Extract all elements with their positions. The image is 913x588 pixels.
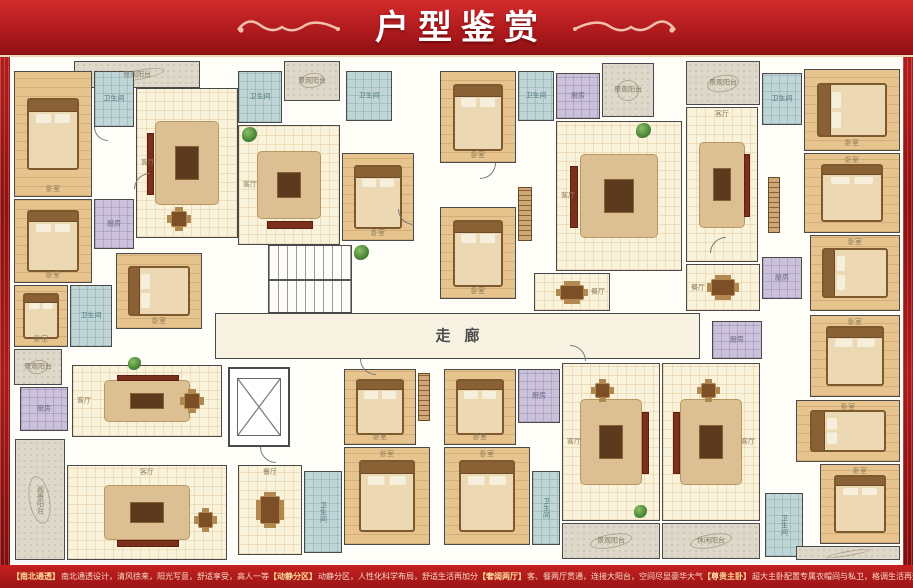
room-label: 卧室	[46, 186, 60, 193]
bed-icon	[821, 164, 883, 223]
room-label: 客厅	[243, 182, 257, 189]
living-top-center: 客厅	[556, 121, 682, 271]
balcony-top-center: 景观阳台	[602, 63, 654, 117]
bed-icon	[27, 98, 78, 170]
room-label: 卧室	[845, 140, 859, 147]
selling-point-text: 超大主卧配置专属衣帽间与私卫，格调生活再升值	[752, 572, 913, 581]
bedroom-top-left-1: 卧室	[14, 71, 92, 197]
room-label: 休闲阳台	[697, 538, 725, 545]
bedroom-bottom-center-r1: 卧室	[444, 369, 516, 445]
room-label: 卧室	[371, 230, 385, 237]
selling-point-tag: 【南北通透】	[12, 572, 60, 581]
bed-icon	[23, 293, 59, 339]
room-label: 卫生间	[543, 498, 550, 519]
room-label: 卫生间	[81, 313, 102, 320]
table-icon	[198, 512, 213, 528]
table-icon	[171, 211, 187, 227]
plant-icon	[128, 357, 141, 370]
room-label: 餐厅	[691, 284, 705, 291]
bedroom-top-left-2: 卧室	[14, 199, 92, 283]
corridor: 走廊	[215, 313, 700, 359]
bedroom-left-small: 卧室	[14, 285, 68, 347]
kitchen-mid-right: 厨房	[712, 321, 762, 359]
door-arc-icon	[94, 127, 108, 141]
room-label: 厨房	[730, 337, 744, 344]
sofa-icon	[257, 151, 321, 219]
room-label: 餐厅	[591, 289, 605, 296]
balcony-top-right: 景观阳台	[686, 61, 760, 105]
room-label: 卧室	[373, 434, 387, 441]
curtain-border-right	[903, 57, 913, 565]
bedroom-top-right-3: 卧室	[810, 235, 900, 311]
plant-icon	[354, 245, 369, 260]
room-label: 景观阳台	[298, 78, 326, 85]
door-arc-icon	[480, 163, 496, 179]
bedroom-top-mid: 卧室	[342, 153, 414, 241]
room-label: 卫生间	[781, 515, 788, 536]
room-label: 厨房	[107, 221, 121, 228]
kitchen-top-right: 厨房	[762, 257, 802, 299]
bedroom-top-center-2: 卧室	[440, 207, 516, 299]
room-label: 景观阳台	[614, 87, 642, 94]
selling-point-tag: 【奢阔两厅】	[478, 572, 526, 581]
room-label: 厨房	[571, 93, 585, 100]
sofa-icon	[155, 121, 219, 206]
selling-point: 【南北通透】南北通透设计，清风徐来，阳光写意，舒适享受，高人一等	[12, 573, 269, 581]
table-icon	[184, 393, 199, 410]
selling-point-tag: 【尊贵主卧】	[703, 572, 751, 581]
bed-icon	[453, 220, 503, 287]
room-label: 厨房	[37, 406, 51, 413]
bed-icon	[810, 410, 885, 451]
sofa-icon	[699, 142, 744, 228]
poster-page: 户型鉴赏 景观阳台卧室卫生间客厅卧室厨房卧室卫生间卧室卫生间景观阳台客厅卧室卫生…	[0, 0, 913, 588]
plant-center	[354, 245, 369, 260]
flourish-left-icon	[234, 14, 346, 42]
room-label: 卧室	[380, 451, 394, 458]
room-label: 景观阳台	[709, 80, 737, 87]
room-label: 客厅	[715, 111, 729, 118]
room-label: 观景阳台	[37, 486, 44, 514]
bath-bottom-center-left: 卫生间	[304, 471, 342, 553]
curtain-border-left	[0, 57, 10, 565]
room-label: 厨房	[532, 393, 546, 400]
plant-bottom-center	[634, 505, 647, 518]
bath-left-mid: 卫生间	[70, 285, 112, 347]
table-icon	[560, 285, 584, 300]
room-label: 景观阳台	[24, 364, 52, 371]
dining-top-center: 餐厅	[534, 273, 610, 311]
selling-point-text: 动静分区，人性化科学布局，舒适生活再加分	[318, 572, 478, 581]
room-label: 景观阳台	[597, 538, 625, 545]
room-label: 卧室	[471, 152, 485, 159]
room-label: 卧室	[845, 157, 859, 164]
bed-icon	[128, 266, 191, 316]
bedroom-bottom-center-r2: 卧室	[444, 447, 530, 545]
room-label: 客厅	[561, 193, 575, 200]
room-label: 景观阳台	[123, 71, 151, 78]
selling-point: 【动静分区】动静分区，人性化科学布局，舒适生活再加分	[269, 573, 478, 581]
bed-icon	[459, 460, 515, 531]
room-label: 客厅	[567, 439, 581, 446]
room-label: 卫生间	[104, 96, 125, 103]
bedroom-bottom-center-l2: 卧室	[344, 447, 430, 545]
selling-points-bar: 【南北通透】南北通透设计，清风徐来，阳光写意，舒适享受，高人一等【动静分区】动静…	[0, 565, 913, 588]
selling-point-text: 客、餐两厅贯通，连接大阳台，空间尽显豪华大气	[527, 572, 703, 581]
plant-icon	[634, 505, 647, 518]
balcony-top-mid: 景观阳台	[284, 61, 340, 101]
balcony-bottom-left-2: 观景阳台	[15, 439, 65, 560]
room-label: 卧室	[848, 319, 862, 326]
room-label: 卧室	[46, 272, 60, 279]
kitchen-top-left: 厨房	[94, 199, 134, 249]
room-label: 卫生间	[359, 93, 380, 100]
room-label: 卫生间	[526, 93, 547, 100]
bedroom-top-center-1: 卧室	[440, 71, 516, 163]
bed-icon	[354, 165, 401, 229]
balcony-top-left: 景观阳台	[74, 61, 200, 88]
dining-bottom-center: 餐厅	[238, 465, 302, 555]
table-icon	[595, 383, 610, 398]
dining-top-right: 餐厅	[686, 264, 760, 311]
room-label: 卧室	[848, 239, 862, 246]
table-icon	[711, 279, 735, 296]
bath-top-left: 卫生间	[94, 71, 134, 127]
wardrobe-top-right	[768, 177, 780, 233]
room-label: 卧室	[34, 336, 48, 343]
floor-plan: 景观阳台卧室卫生间客厅卧室厨房卧室卫生间卧室卫生间景观阳台客厅卧室卫生间卧室卫生…	[10, 57, 903, 565]
room-label: 走廊	[421, 329, 493, 344]
balcony-bottom-left-1: 景观阳台	[14, 349, 62, 385]
selling-point-text: 南北通透设计，清风徐来，阳光写意，舒适享受，高人一等	[61, 572, 269, 581]
kitchen-bottom-left: 厨房	[20, 387, 68, 431]
bedroom-bottom-right-2: 卧室	[820, 464, 900, 544]
bedroom-top-right-1: 卧室	[804, 69, 900, 151]
selling-point: 【尊贵主卧】超大主卧配置专属衣帽间与私卫，格调生活再升值	[703, 573, 913, 581]
room-label: 卧室	[841, 404, 855, 411]
bath-bottom-center-right: 卫生间	[532, 471, 560, 545]
stairwell	[268, 245, 352, 313]
plant-top-mid	[242, 127, 257, 142]
sofa-icon	[104, 380, 190, 421]
bed-icon	[456, 379, 503, 435]
plant-icon	[636, 123, 651, 138]
bed-icon	[826, 326, 885, 386]
sofa-icon	[580, 399, 642, 485]
room-label: 卧室	[471, 288, 485, 295]
plant-bottom-left	[128, 357, 141, 370]
plant-icon	[242, 127, 257, 142]
room-label: 卧室	[152, 318, 166, 325]
title-banner: 户型鉴赏	[0, 0, 913, 57]
room-label: 卧室	[473, 434, 487, 441]
elevator	[228, 367, 290, 447]
room-label: 客厅	[77, 398, 91, 405]
bedroom-bottom-right-1: 卧室	[796, 400, 900, 462]
balcony-bottom-center-1: 景观阳台	[562, 523, 660, 559]
kitchen-bottom-center: 厨房	[518, 369, 560, 423]
bath-top-right: 卫生间	[762, 73, 802, 125]
kitchen-top-center: 厨房	[556, 73, 600, 119]
bedroom-left-mid: 卧室	[116, 253, 202, 329]
balcony-bottom-center-2: 休闲阳台	[662, 523, 760, 559]
flourish-right-icon	[567, 14, 679, 42]
plant-top-right	[636, 123, 651, 138]
bed-icon	[822, 248, 888, 298]
bath-top-center-small: 卫生间	[346, 71, 392, 121]
bath-top-center: 卫生间	[518, 71, 554, 121]
bed-icon	[359, 460, 415, 531]
wardrobe-icon	[518, 187, 532, 241]
sofa-icon	[104, 485, 190, 539]
selling-point-tag: 【动静分区】	[269, 572, 317, 581]
room-label: 卧室	[853, 468, 867, 475]
page-title: 户型鉴赏	[366, 11, 547, 45]
wardrobe-bottom-center	[418, 373, 430, 421]
wardrobe-icon	[768, 177, 780, 233]
room-label: 客厅	[741, 439, 755, 446]
room-label: 客厅	[141, 160, 155, 167]
sofa-icon	[580, 154, 659, 239]
bedroom-top-right-2: 卧室	[804, 153, 900, 233]
selling-point: 【奢阔两厅】客、餐两厅贯通，连接大阳台，空间尽显豪华大气	[478, 573, 703, 581]
table-icon	[260, 496, 281, 524]
room-label: 卫生间	[320, 502, 327, 523]
living-top-mid: 客厅	[238, 125, 340, 245]
bed-icon	[356, 379, 403, 435]
bed-icon	[453, 84, 503, 151]
bedroom-mid-right: 卧室	[810, 315, 900, 397]
wardrobe-top-center	[518, 187, 532, 241]
room-label: 卫生间	[250, 94, 271, 101]
bed-icon	[834, 475, 886, 534]
wardrobe-icon	[418, 373, 430, 421]
room-label: 客厅	[140, 469, 154, 476]
room-label: 卫生间	[772, 96, 793, 103]
room-label: 厨房	[775, 275, 789, 282]
room-label: 卧室	[480, 451, 494, 458]
door-arc-icon	[260, 447, 276, 463]
dining-zone-bottom-left-2	[185, 499, 225, 541]
table-icon	[701, 383, 716, 398]
sofa-icon	[680, 399, 742, 485]
bed-icon	[27, 210, 78, 271]
room-label: 餐厅	[263, 469, 277, 476]
bedroom-bottom-center-l1: 卧室	[344, 369, 416, 445]
bath-top-mid: 卫生间	[238, 71, 282, 123]
bed-icon	[817, 83, 887, 137]
balcony-bottom-right	[796, 546, 900, 560]
